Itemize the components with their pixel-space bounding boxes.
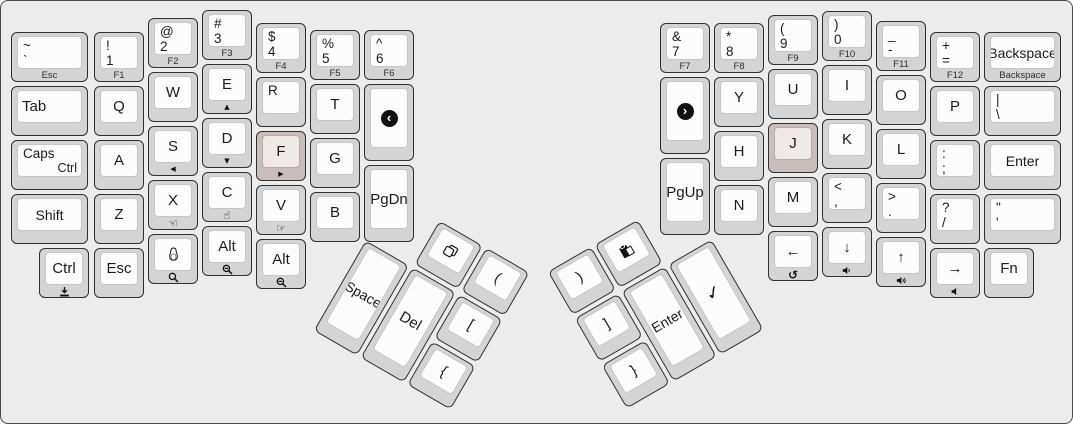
key-shift-left[interactable]: Shift [11, 194, 88, 244]
key-a-label: A [101, 145, 137, 176]
key-period-cap: >. [882, 187, 920, 220]
key-n[interactable]: N [714, 185, 764, 235]
key-c-cap: C [208, 176, 246, 209]
volume-up-icon [896, 276, 906, 285]
key-l-label: L [883, 134, 919, 165]
key-r-cap: R [262, 81, 300, 114]
key-equals-cap: += [936, 36, 974, 69]
key-1-cap: !1 [100, 36, 138, 69]
key-quote-cap: "' [990, 198, 1055, 231]
key-browser-forward[interactable]: › [660, 77, 710, 154]
key-backspace-front-legend: Backspace [985, 70, 1060, 81]
key-esc-left-cap: Esc [100, 252, 138, 285]
key-paren-right-label: ) [556, 255, 603, 300]
key-l-cap: L [882, 133, 920, 166]
key-5-front-legend: F5 [311, 68, 359, 79]
key-period-label: >. [883, 188, 919, 219]
key-pgup-cap: PgUp [666, 162, 704, 222]
hand-left-icon: ☜ [168, 218, 178, 229]
key-b-label: B [317, 197, 353, 228]
key-n-label: N [721, 190, 757, 221]
key-semicolon[interactable]: :; [930, 140, 980, 190]
key-grave-esc[interactable]: ~`Esc [11, 32, 88, 82]
key-arrow-down-cap: ↓ [828, 231, 866, 264]
key-r[interactable]: R [256, 77, 306, 127]
key-alt-left-2[interactable]: Alt [256, 239, 306, 289]
key-7-label: &7 [667, 28, 703, 59]
key-t-cap: T [316, 88, 354, 121]
key-g[interactable]: G [310, 138, 360, 188]
keyboard-canvas: (SpaceDel[{ )]Enter✓} ~`EscTabCapsCtrlSh… [0, 0, 1073, 424]
key-z-cap: Z [100, 198, 138, 231]
key-h[interactable]: H [714, 131, 764, 181]
key-backspace[interactable]: BackspaceBackspace [984, 32, 1061, 82]
key-pgdn[interactable]: PgDn [364, 165, 414, 242]
key-dash-cap: _- [882, 25, 920, 58]
key-comma[interactable]: <, [822, 173, 872, 223]
key-f[interactable]: F▶ [256, 131, 306, 181]
key-s-cap: S [154, 130, 192, 163]
key-t[interactable]: T [310, 84, 360, 134]
key-q-label: Q [101, 91, 137, 122]
key-ctrl-left[interactable]: Ctrl [39, 248, 89, 298]
key-f-label: F [263, 136, 299, 167]
key-3-cap: #3 [208, 14, 246, 47]
key-1[interactable]: !1F1 [94, 32, 144, 82]
key-pgdn-label: PgDn [371, 170, 407, 228]
key-enter-right-label: Enter [991, 145, 1054, 176]
key-tab[interactable]: Tab [11, 86, 88, 136]
key-s[interactable]: S◀ [148, 126, 198, 176]
key-0-front-legend: F10 [823, 49, 871, 60]
key-bracket-left-cap: [ [446, 301, 495, 349]
key-2-cap: @2 [154, 22, 192, 55]
volume-mute-icon [950, 287, 960, 296]
magnifier-minus-icon [276, 277, 287, 288]
key-e[interactable]: E▲ [202, 64, 252, 114]
key-g-cap: G [316, 142, 354, 175]
key-u-cap: U [774, 73, 812, 106]
key-ctrl-left-cap: Ctrl [45, 252, 83, 285]
key-v-cap: V [262, 189, 300, 222]
key-caps-cap: CapsCtrl [17, 144, 82, 177]
triangle-up-icon: ▲ [224, 104, 229, 111]
key-shift-left-label: Shift [18, 199, 81, 230]
key-pgdn-cap: PgDn [370, 169, 408, 229]
key-copy-cap [426, 227, 475, 275]
key-semicolon-label: :; [937, 145, 973, 176]
key-arrow-left-front-legend: ↺ [769, 269, 817, 280]
key-u-label: U [775, 74, 811, 105]
key-b-cap: B [316, 196, 354, 229]
key-y[interactable]: Y [714, 77, 764, 127]
key-bracket-right-cap: ] [582, 300, 631, 348]
hand-up-icon: ☝ [224, 210, 231, 221]
key-dash-label: _- [883, 26, 919, 57]
key-arrow-right[interactable]: → [930, 248, 980, 298]
key-arrow-right-label: → [937, 253, 973, 284]
key-slash-cap: ?/ [936, 198, 974, 231]
key-brace-right-label: } [610, 348, 657, 393]
key-equals[interactable]: +=F12 [930, 32, 980, 82]
key-k-label: K [829, 124, 865, 155]
key-9[interactable]: (9F9 [768, 15, 818, 65]
key-f-cap: F [262, 135, 300, 168]
key-x-cap: X [154, 184, 192, 217]
key-pgup[interactable]: PgUp [660, 158, 710, 235]
key-x[interactable]: X☜ [148, 180, 198, 230]
key-0-label: )0 [829, 16, 865, 47]
magnifier-icon [168, 272, 179, 283]
key-fn-label: Fn [991, 253, 1027, 284]
key-alt-left-1-front-legend [203, 264, 251, 275]
key-paren-left-label: ( [474, 256, 521, 301]
key-enter-right[interactable]: Enter [984, 140, 1061, 190]
key-esc-left-label: Esc [101, 253, 137, 284]
key-alt-left-1-cap: Alt [208, 230, 246, 263]
key-2[interactable]: @2F2 [148, 18, 198, 68]
key-m-label: M [775, 182, 811, 213]
key-3-front-legend: F3 [203, 48, 251, 59]
key-3-label: #3 [209, 15, 245, 46]
key-d-front-legend: ▼ [203, 156, 251, 167]
key-backslash[interactable]: |\ [984, 86, 1061, 136]
key-ctrl-left-front-legend [40, 286, 88, 297]
key-arrow-right-cap: → [936, 252, 974, 285]
key-bracket-left-label: [ [447, 302, 494, 347]
key-5[interactable]: %5F5 [310, 30, 360, 80]
key-m-cap: M [774, 181, 812, 214]
key-j-label: J [775, 128, 811, 159]
key-arrow-down[interactable]: ↓ [822, 227, 872, 277]
key-shift-left-cap: Shift [17, 198, 82, 231]
key-v-label: V [263, 190, 299, 221]
key-alt-left-2-front-legend [257, 277, 305, 288]
key-w-cap: W [154, 76, 192, 109]
circle-back-icon: ‹ [381, 109, 398, 127]
key-x-front-legend: ☜ [149, 218, 197, 229]
key-p-label: P [937, 91, 973, 122]
key-1-label: !1 [101, 37, 137, 68]
key-backslash-label: |\ [991, 91, 1054, 122]
key-equals-front-legend: F12 [931, 70, 979, 81]
key-backslash-cap: |\ [990, 90, 1055, 123]
key-slash[interactable]: ?/ [930, 194, 980, 244]
key-9-label: (9 [775, 20, 811, 51]
key-o-cap: O [882, 79, 920, 112]
key-arrow-up[interactable]: ↑ [876, 237, 926, 287]
key-2-label: @2 [155, 23, 191, 54]
key-p[interactable]: P [930, 86, 980, 136]
key-comma-cap: <, [828, 177, 866, 210]
triangle-down-icon: ▼ [224, 158, 229, 165]
key-f-front-legend: ▶ [257, 169, 305, 180]
key-3[interactable]: #3F3 [202, 10, 252, 60]
key-dash[interactable]: _-F11 [876, 21, 926, 71]
key-enter-right-cap: Enter [990, 144, 1055, 177]
key-paste-cap [602, 226, 651, 274]
key-c-front-legend: ☝ [203, 210, 251, 221]
key-h-cap: H [720, 135, 758, 168]
key-caps-sublabel: Ctrl [58, 161, 77, 175]
key-b[interactable]: B [310, 192, 360, 242]
key-arrow-up-front-legend [877, 275, 925, 286]
key-browser-back-cap: ‹ [370, 88, 408, 148]
key-o[interactable]: O [876, 75, 926, 125]
key-j[interactable]: J [768, 123, 818, 173]
key-browser-forward-cap: › [666, 81, 704, 141]
key-tab-label: Tab [18, 91, 81, 122]
key-backspace-cap: Backspace [990, 36, 1055, 69]
key-d-cap: D [208, 122, 246, 155]
key-browser-back[interactable]: ‹ [364, 84, 414, 161]
key-paren-left-cap: ( [473, 254, 522, 302]
key-e-front-legend: ▲ [203, 102, 251, 113]
key-bracket-right-label: ] [583, 301, 630, 346]
key-arrow-right-front-legend [931, 286, 979, 297]
undo-icon: ↺ [788, 269, 798, 281]
key-s-front-legend: ◀ [149, 164, 197, 175]
key-penguin[interactable] [148, 234, 198, 284]
key-x-label: X [155, 185, 191, 216]
key-s-label: S [155, 131, 191, 162]
key-e-cap: E [208, 68, 246, 101]
key-9-cap: (9 [774, 19, 812, 52]
key-h-label: H [721, 136, 757, 167]
triangle-right-icon: ▶ [278, 171, 283, 178]
key-fn-cap: Fn [990, 252, 1028, 285]
key-arrow-left-label: ← [775, 236, 811, 267]
key-8[interactable]: *8F8 [714, 23, 764, 73]
key-4-cap: $4 [262, 27, 300, 60]
key-penguin-front-legend [149, 272, 197, 283]
key-paren-right-cap: ) [555, 253, 604, 301]
key-grave-esc-label: ~` [18, 37, 81, 68]
key-8-label: *8 [721, 28, 757, 59]
key-p-cap: P [936, 90, 974, 123]
key-i-cap: I [828, 69, 866, 102]
key-g-label: G [317, 143, 353, 174]
key-arrow-down-label: ↓ [829, 232, 865, 263]
key-0-cap: )0 [828, 15, 866, 48]
key-o-label: O [883, 80, 919, 111]
key-period[interactable]: >. [876, 183, 926, 233]
penguin-icon [167, 247, 180, 262]
key-a-cap: A [100, 144, 138, 177]
key-t-label: T [317, 89, 353, 120]
key-arrow-left-cap: ← [774, 235, 812, 268]
key-grave-esc-front-legend: Esc [12, 70, 87, 81]
key-6-label: ^6 [371, 35, 407, 66]
key-w-label: W [155, 77, 191, 108]
key-grave-esc-cap: ~` [17, 36, 82, 69]
key-d-label: D [209, 123, 245, 154]
key-8-cap: *8 [720, 27, 758, 60]
key-5-label: %5 [317, 35, 353, 66]
key-arrow-left[interactable]: ←↺ [768, 231, 818, 281]
key-v-front-legend: ☞ [257, 223, 305, 234]
key-ctrl-left-label: Ctrl [46, 253, 82, 284]
key-m[interactable]: M [768, 177, 818, 227]
key-z-label: Z [101, 199, 137, 230]
magnifier-minus-icon [222, 264, 233, 275]
key-6[interactable]: ^6F6 [364, 30, 414, 80]
key-k-cap: K [828, 123, 866, 156]
paste-icon [617, 240, 636, 259]
key-brace-left-cap: { [419, 348, 468, 396]
key-fn[interactable]: Fn [984, 248, 1034, 298]
key-8-front-legend: F8 [715, 61, 763, 72]
key-7-cap: &7 [666, 27, 704, 60]
key-q[interactable]: Q [94, 86, 144, 136]
key-quote[interactable]: "' [984, 194, 1061, 244]
key-4-label: $4 [263, 28, 299, 59]
key-v[interactable]: V☞ [256, 185, 306, 235]
key-arrow-down-front-legend [823, 265, 871, 276]
key-l[interactable]: L [876, 129, 926, 179]
key-esc-left[interactable]: Esc [94, 248, 144, 298]
key-e-label: E [209, 69, 245, 100]
key-4-front-legend: F4 [257, 61, 305, 72]
key-alt-left-1[interactable]: Alt [202, 226, 252, 276]
key-6-cap: ^6 [370, 34, 408, 67]
download-icon [59, 287, 70, 297]
key-0[interactable]: )0F10 [822, 11, 872, 61]
circle-forward-icon: › [677, 102, 694, 120]
key-brace-right-cap: } [609, 347, 658, 395]
key-k[interactable]: K [822, 119, 872, 169]
key-arrow-up-cap: ↑ [882, 241, 920, 274]
key-slash-label: ?/ [937, 199, 973, 230]
copy-icon [441, 241, 460, 260]
key-u[interactable]: U [768, 69, 818, 119]
key-7-front-legend: F7 [661, 61, 709, 72]
key-n-cap: N [720, 189, 758, 222]
key-penguin-cap [154, 238, 192, 271]
key-r-label: R [263, 82, 299, 113]
key-4[interactable]: $4F4 [256, 23, 306, 73]
key-pgup-label: PgUp [667, 163, 703, 221]
key-6-front-legend: F6 [365, 68, 413, 79]
key-2-front-legend: F2 [149, 56, 197, 67]
key-i-label: I [829, 70, 865, 101]
key-alt-left-2-cap: Alt [262, 243, 300, 276]
key-semicolon-cap: :; [936, 144, 974, 177]
key-i[interactable]: I [822, 65, 872, 115]
key-w[interactable]: W [148, 72, 198, 122]
key-7[interactable]: &7F7 [660, 23, 710, 73]
key-caps[interactable]: CapsCtrl [11, 140, 88, 190]
key-equals-label: += [937, 37, 973, 68]
key-5-cap: %5 [316, 34, 354, 67]
key-c[interactable]: C☝ [202, 172, 252, 222]
key-a[interactable]: A [94, 140, 144, 190]
key-backspace-label: Backspace [991, 37, 1054, 68]
triangle-left-icon: ◀ [170, 166, 175, 173]
key-arrow-up-label: ↑ [883, 242, 919, 273]
key-brace-left-label: { [420, 349, 467, 394]
key-alt-left-2-label: Alt [263, 244, 299, 275]
key-j-cap: J [774, 127, 812, 160]
key-alt-left-1-label: Alt [209, 231, 245, 262]
key-q-cap: Q [100, 90, 138, 123]
key-y-label: Y [721, 82, 757, 113]
key-quote-label: "' [991, 199, 1054, 230]
key-9-front-legend: F9 [769, 53, 817, 64]
key-d[interactable]: D▼ [202, 118, 252, 168]
key-comma-label: <, [829, 178, 865, 209]
hand-right-icon: ☞ [276, 223, 286, 234]
volume-down-icon [842, 266, 852, 275]
key-z[interactable]: Z [94, 194, 144, 244]
key-c-label: C [209, 177, 245, 208]
key-y-cap: Y [720, 81, 758, 114]
key-tab-cap: Tab [17, 90, 82, 123]
check-icon: ✓ [703, 282, 725, 305]
key-dash-front-legend: F11 [877, 59, 925, 70]
key-1-front-legend: F1 [95, 70, 143, 81]
